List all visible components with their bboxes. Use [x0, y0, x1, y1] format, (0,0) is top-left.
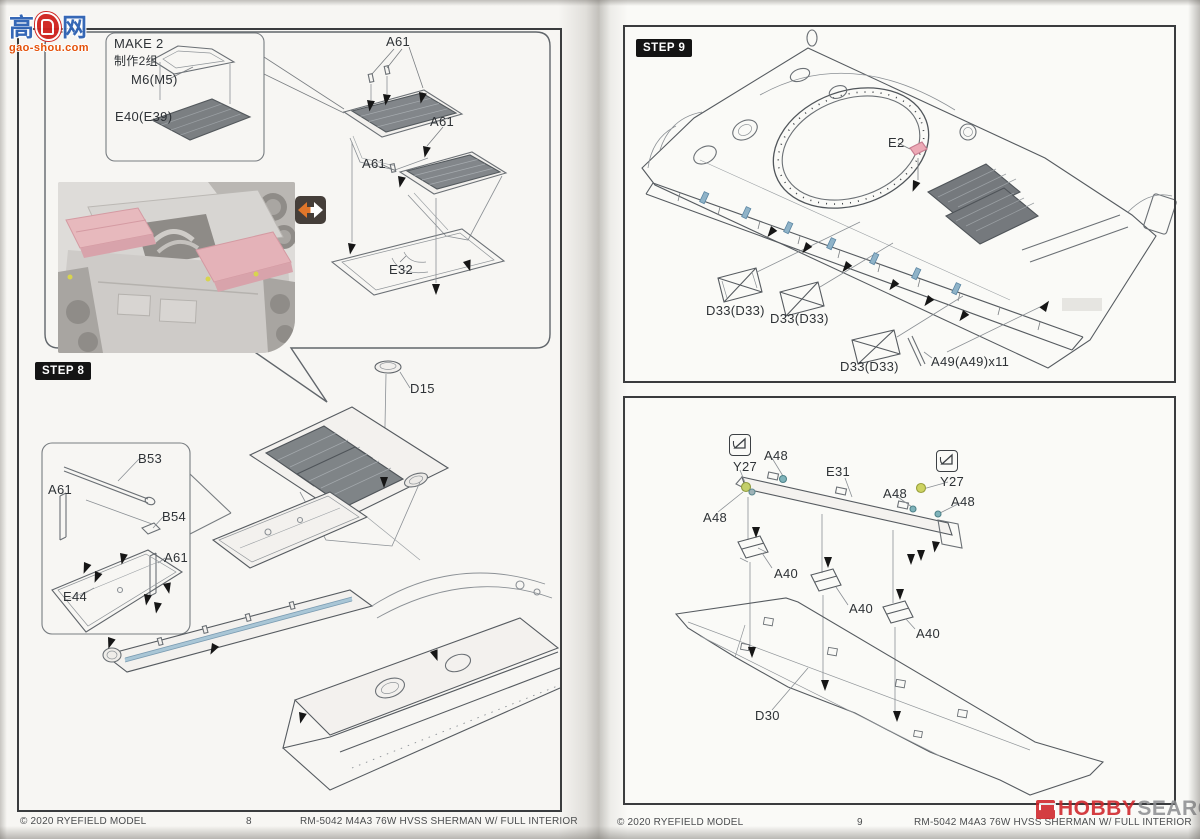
part-label-e2: E2: [888, 135, 905, 150]
part-label-a61-callout2: A61: [164, 550, 188, 565]
part-label-a48-4: A48: [951, 494, 975, 509]
step8-label: STEP 8: [35, 362, 91, 380]
part-label-d33-1: D33(D33): [706, 303, 765, 318]
hobbysearch-watermark: HOBBY SEARCH: [1036, 797, 1200, 821]
make-box-title-cn: 制作2组: [114, 52, 158, 69]
part-label-a49: A49(A49)x11: [931, 354, 1009, 369]
gaoshou-watermark: 高 网 gao-shou.com: [9, 8, 89, 54]
part-label-a61-callout1: A61: [48, 482, 72, 497]
gaoshou-url: gao-shou.com: [9, 42, 89, 54]
part-label-e31: E31: [826, 464, 850, 479]
model-photo-art: [58, 182, 295, 353]
part-label-e44: E44: [63, 589, 87, 604]
gaoshou-char-left: 高: [9, 8, 34, 44]
part-label-e40: E40(E39): [115, 109, 172, 124]
part-label-d30: D30: [755, 708, 780, 723]
part-label-d15: D15: [410, 381, 435, 396]
part-label-a61-top: A61: [386, 34, 410, 49]
part-label-d33-3: D33(D33): [840, 359, 899, 374]
part-label-y27-2: Y27: [940, 474, 964, 489]
part-label-a40-3: A40: [916, 626, 940, 641]
thumb-icon: [35, 12, 61, 41]
make-box-title: MAKE 2: [114, 36, 163, 51]
part-label-a48-1: A48: [764, 448, 788, 463]
part-label-m6: M6(M5): [131, 72, 178, 87]
step9-panel-frame: [623, 25, 1176, 383]
part-label-e32: E32: [389, 262, 413, 277]
part-label-a48-2: A48: [703, 510, 727, 525]
hobbysearch-logo-icon: [1036, 800, 1055, 819]
edge-shadow-bottom: [0, 826, 1200, 839]
step8-panel-frame: [17, 28, 562, 812]
part-label-a40-2: A40: [849, 601, 873, 616]
part-label-b54: B54: [162, 509, 186, 524]
glue-icon-2: [936, 450, 958, 472]
booklet-spread: STEP 8 STEP 9 MAKE 2 制作2组 M6(M5) E40(E39…: [0, 0, 1200, 839]
model-photo: [58, 182, 295, 353]
part-label-d33-2: D33(D33): [770, 311, 829, 326]
edge-shadow-left: [0, 0, 7, 839]
hobbysearch-word1: HOBBY: [1058, 797, 1136, 821]
swap-direction-icon: [295, 196, 326, 224]
part-label-a61-mid: A61: [430, 114, 454, 129]
part-label-a61-low: A61: [362, 156, 386, 171]
edge-shadow-right: [1188, 0, 1200, 839]
part-label-y27-1: Y27: [733, 459, 757, 474]
gaoshou-char-right: 网: [62, 8, 87, 44]
page-gutter-shadow: [558, 0, 628, 839]
part-label-b53: B53: [138, 451, 162, 466]
part-label-a48-3: A48: [883, 486, 907, 501]
step9b-panel-frame: [623, 396, 1176, 805]
step9-label: STEP 9: [636, 39, 692, 57]
edge-shadow-top: [0, 0, 1200, 6]
glue-icon-1: [729, 434, 751, 456]
part-label-a40-1: A40: [774, 566, 798, 581]
